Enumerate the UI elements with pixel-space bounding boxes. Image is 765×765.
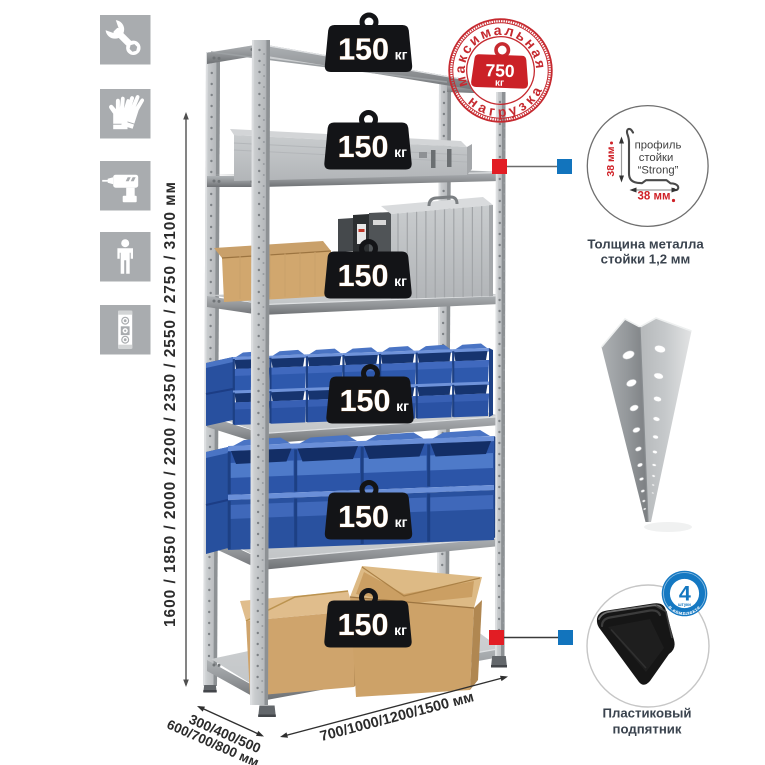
svg-text:150: 150	[338, 259, 389, 293]
svg-text:38 мм: 38 мм	[637, 191, 670, 203]
svg-text:кг: кг	[395, 514, 408, 530]
svg-text:штуки: штуки	[678, 602, 691, 607]
svg-text:кг: кг	[396, 398, 409, 414]
svg-text:150: 150	[338, 130, 389, 164]
svg-text:подпятник: подпятник	[612, 722, 681, 737]
svg-text:150: 150	[338, 500, 389, 534]
svg-text:кг: кг	[395, 47, 408, 63]
svg-text:1600 / 1850 / 2000 / 2200 / 23: 1600 / 1850 / 2000 / 2200 / 2350 / 2550 …	[162, 182, 179, 627]
svg-text:150: 150	[338, 608, 389, 642]
svg-text:стойки 1,2 мм: стойки 1,2 мм	[601, 252, 691, 267]
svg-text:кг: кг	[394, 144, 407, 160]
svg-text:профиль: профиль	[635, 140, 682, 152]
svg-text:38 мм: 38 мм	[605, 146, 617, 176]
svg-text:Толщина металла: Толщина металла	[587, 237, 704, 252]
svg-text:кг: кг	[394, 273, 407, 289]
svg-text:кг: кг	[495, 78, 505, 89]
svg-text:“Strong”: “Strong”	[638, 165, 679, 177]
svg-text:кг: кг	[394, 622, 407, 638]
svg-text:Пластиковый: Пластиковый	[602, 706, 691, 721]
svg-text:150: 150	[340, 384, 391, 418]
svg-text:стойки: стойки	[639, 152, 674, 164]
svg-text:150: 150	[338, 33, 389, 67]
